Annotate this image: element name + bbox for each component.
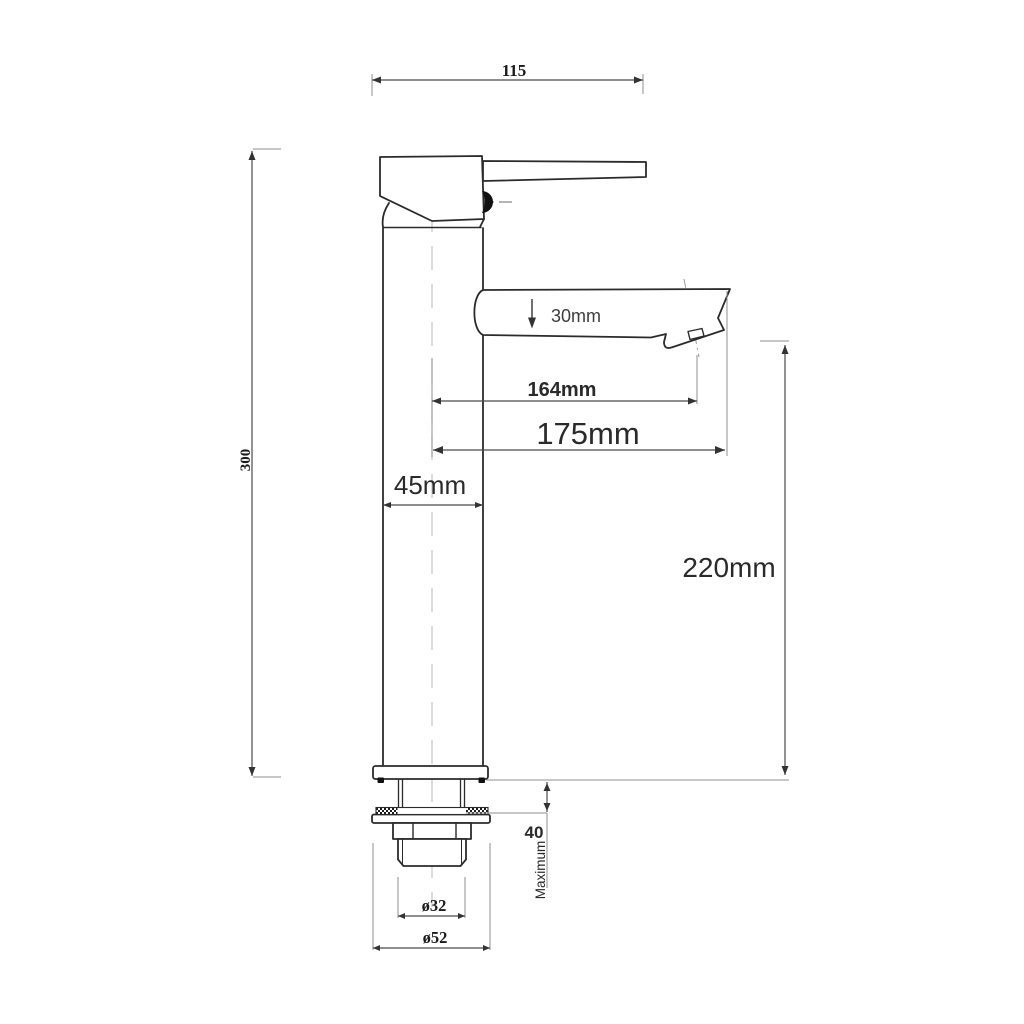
mounting-ring <box>372 815 490 824</box>
label-thread-diameter: ø32 <box>422 896 447 915</box>
label-width-top: 115 <box>502 61 527 80</box>
label-reach-aerator: 164mm <box>528 379 597 401</box>
label-body-diameter: 45mm <box>394 470 466 500</box>
washer-hatch-left <box>377 808 398 814</box>
threaded-shank <box>398 839 466 866</box>
faucet-technical-drawing: 115 300 30mm 164mm 175mm 45mm 220mm 40 M… <box>0 0 1024 1024</box>
label-base-diameter: ø52 <box>423 928 448 947</box>
mounting-nut <box>393 823 471 839</box>
label-spout-pipe: 30mm <box>551 306 601 326</box>
label-deck-max-note: Maximum <box>533 841 548 900</box>
flange-tab-left <box>378 778 385 784</box>
faucet-handle-lever <box>483 161 646 181</box>
label-reach-spout: 175mm <box>536 416 639 451</box>
label-deck-max: 40 <box>525 823 544 842</box>
base-flange <box>373 766 488 779</box>
background <box>0 0 1024 1024</box>
flange-tab-right <box>479 778 486 784</box>
label-spout-height: 220mm <box>682 552 775 583</box>
label-height-overall: 300 <box>238 449 254 472</box>
drawing-canvas: 115 300 30mm 164mm 175mm 45mm 220mm 40 M… <box>0 0 1024 1024</box>
